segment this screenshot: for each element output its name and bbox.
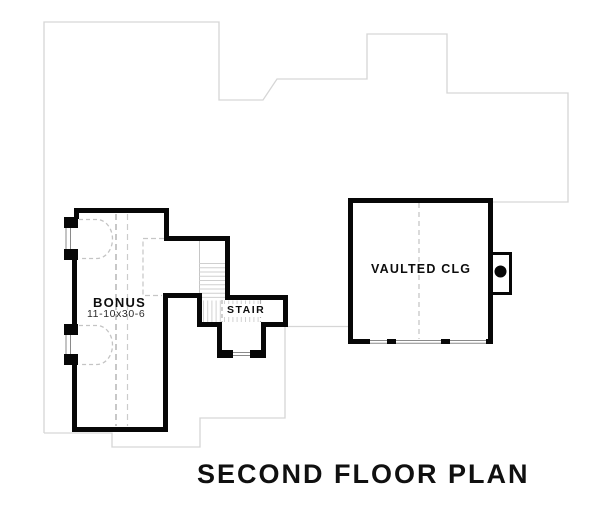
bonus-jog-wall <box>164 236 230 241</box>
plan-title: SECOND FLOOR PLAN <box>197 461 530 488</box>
vaulted-clg-room-label: VAULTED CLG <box>371 263 471 276</box>
chimney-bump-right <box>509 252 512 295</box>
ceiling-break-dashed-lines <box>116 214 128 426</box>
window-glass-lines <box>66 228 488 356</box>
bonus-room-dimensions: 11-10x30-6 <box>87 309 145 320</box>
stair-hall-top-wall <box>225 295 288 300</box>
bonus-right-lower-wall <box>163 293 168 432</box>
stair-opening-dashed <box>143 239 164 296</box>
stair-room-label: STAIR <box>224 304 268 317</box>
stair-upper-right-wall <box>225 236 230 300</box>
vaulted-top-wall <box>348 198 493 203</box>
floor-plan-drawing <box>0 0 600 514</box>
window-jamb <box>250 350 266 358</box>
chimney-bump-bottom <box>493 292 512 295</box>
window-jamb <box>64 354 78 365</box>
vaulted-bottom-wall-seg <box>486 339 493 344</box>
window-mullion <box>441 339 450 344</box>
vaulted-left-wall <box>348 198 353 344</box>
stair-treads-upper-flight <box>199 241 225 297</box>
window-jamb <box>64 324 78 335</box>
window-jamb <box>64 217 78 228</box>
bonus-bottom-wall <box>72 427 168 432</box>
chimney-flue-circle <box>495 266 507 278</box>
floor-plan-page: BONUS 11-10x30-6 STAIR VAULTED CLG SECON… <box>0 0 600 514</box>
bonus-mid-jog-wall <box>163 293 202 298</box>
window-bay-arc-dashed <box>79 220 113 365</box>
bonus-top-wall <box>74 208 169 213</box>
window-mullion <box>387 339 396 344</box>
vaulted-bottom-wall-seg <box>348 339 370 344</box>
stair-hall-left-wall <box>197 293 202 327</box>
vaulted-right-wall <box>488 198 493 344</box>
window-jamb <box>64 249 78 260</box>
window-jamb <box>217 350 233 358</box>
